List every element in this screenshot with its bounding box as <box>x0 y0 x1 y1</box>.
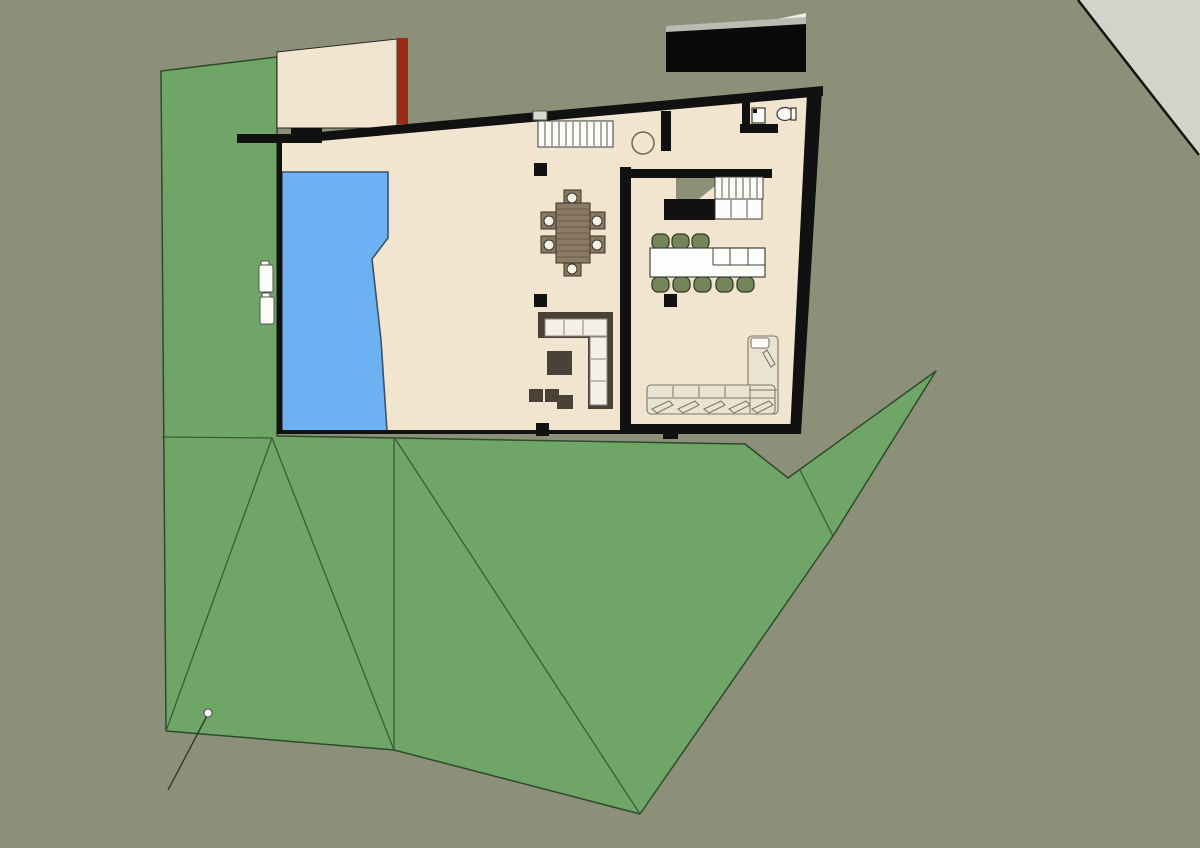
stool <box>652 234 669 249</box>
chair-cushion <box>567 264 577 274</box>
stool <box>672 234 689 249</box>
chair-cushion <box>544 216 554 226</box>
entry-wall-stub <box>661 111 671 151</box>
side-table <box>557 395 573 409</box>
bathroom-wall-stub <box>742 97 750 124</box>
stair-closet <box>715 199 762 219</box>
survey-point-marker <box>204 709 212 717</box>
coffee-table <box>547 351 572 375</box>
planter <box>259 265 273 292</box>
site-plan-canvas <box>0 0 1200 848</box>
bathroom-wall-bar <box>740 124 778 133</box>
stool <box>694 277 711 292</box>
column <box>534 163 547 176</box>
door-jamb-column <box>663 426 678 439</box>
stool <box>652 277 669 292</box>
toilet-tank <box>791 108 796 120</box>
terrace-edge <box>279 430 622 434</box>
headrest-pillow <box>751 338 769 348</box>
column <box>534 294 547 307</box>
chair-cushion <box>567 193 577 203</box>
stool <box>716 277 733 292</box>
stool <box>737 277 754 292</box>
swimming-pool <box>282 172 388 431</box>
chair-cushion <box>592 240 602 250</box>
stair-body <box>538 121 613 147</box>
north-wall-step <box>291 128 322 136</box>
sofa-cushions-top <box>545 319 607 336</box>
roof-black-slab <box>666 24 806 72</box>
plan-render-viewport[interactable] <box>0 0 1200 848</box>
kitchen-stair-wall <box>664 199 715 220</box>
main-stairs <box>538 121 613 147</box>
chair-cushion <box>544 240 554 250</box>
interior-wall-vertical <box>620 167 631 433</box>
sink-faucet <box>753 109 757 113</box>
courtyard-floor <box>277 39 397 128</box>
planter <box>260 297 274 324</box>
outdoor-step <box>533 111 547 120</box>
chair-cushion <box>592 216 602 226</box>
side-table <box>545 389 559 402</box>
stool <box>673 277 690 292</box>
column <box>664 294 677 307</box>
sofa-cushions-side <box>590 337 607 405</box>
red-accent-wall <box>397 38 408 124</box>
side-table <box>529 389 543 402</box>
column <box>536 423 549 436</box>
west-wall <box>277 140 282 434</box>
south-wall <box>621 424 798 434</box>
stool <box>692 234 709 249</box>
courtyard <box>277 38 408 128</box>
